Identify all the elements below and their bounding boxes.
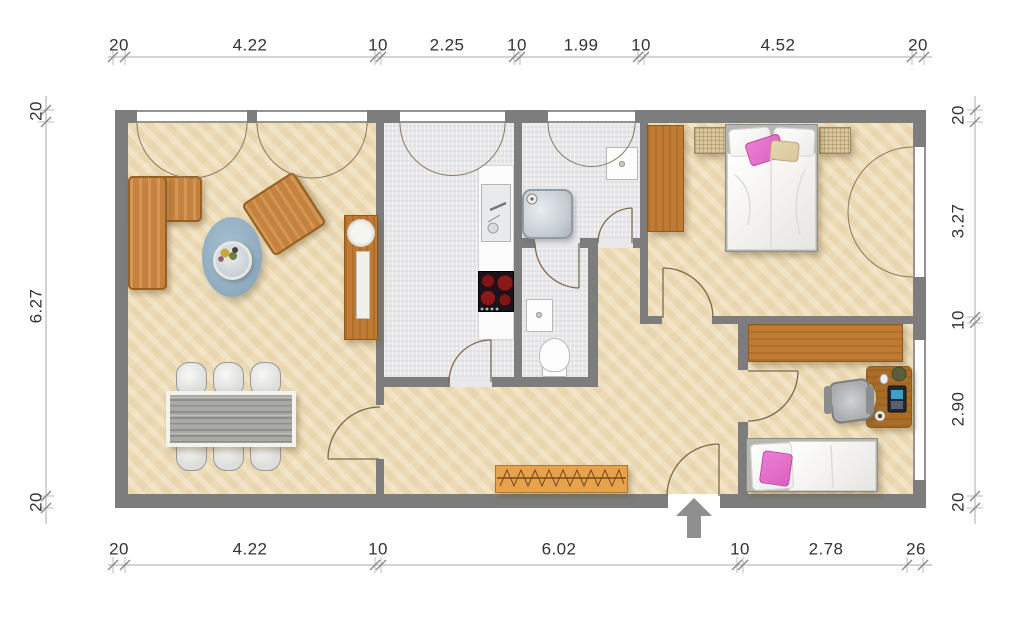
- dim-bottom-4: 10: [730, 541, 750, 558]
- dim-right-2: 10: [950, 310, 967, 330]
- nightstand-right: [819, 127, 851, 154]
- dim-top-0: 20: [109, 37, 129, 54]
- wall-bath-south-b: [580, 238, 598, 248]
- coat-rack: [495, 465, 628, 493]
- dim-top-8: 20: [908, 37, 928, 54]
- dim-right-3: 2.90: [950, 392, 967, 427]
- wall-kitchen-bath: [514, 123, 522, 377]
- window-living-left: [137, 110, 247, 123]
- cushion-pink-office: [759, 450, 793, 487]
- dim-left-1: 6.27: [28, 289, 45, 324]
- single-bed-duvet: [789, 441, 876, 491]
- wall-living-hall-lower: [376, 459, 384, 494]
- wall-outer-bottom: [115, 494, 926, 508]
- dim-bottom-5: 2.78: [809, 541, 844, 558]
- threshold-bath-door: [598, 238, 633, 248]
- kitchen-sink: [481, 184, 511, 242]
- dim-top-5: 1.99: [564, 37, 599, 54]
- nightstand-left: [694, 127, 726, 154]
- dim-bottom-1: 4.22: [233, 541, 268, 558]
- toilet-bowl: [539, 338, 570, 372]
- coffee-table: [213, 241, 252, 280]
- entrance-opening: [668, 494, 720, 508]
- threshold-kitchen-door: [450, 377, 492, 387]
- dim-left-2: 20: [28, 492, 45, 512]
- dim-bottom-3: 6.02: [542, 541, 577, 558]
- cushion-beige-bedroom: [769, 140, 800, 163]
- wall-outer-left: [115, 110, 128, 508]
- wc-washbasin: [526, 299, 553, 332]
- wardrobe-bedroom: [647, 125, 684, 232]
- dim-top-6: 10: [631, 37, 651, 54]
- dim-right-0: 20: [950, 105, 967, 125]
- dim-top-3: 2.25: [430, 37, 465, 54]
- window-office: [913, 340, 926, 480]
- window-kitchen: [400, 110, 505, 123]
- dim-top-2: 10: [368, 37, 388, 54]
- dim-bottom-2: 10: [368, 541, 388, 558]
- sofa-corner-vertical: [128, 176, 167, 290]
- threshold-wc-door: [535, 238, 580, 248]
- floor-plan: 20 4.22 10 2.25 10 1.99 10 4.52 20 20 4.…: [0, 0, 1033, 617]
- wall-bedroom-south-west: [648, 316, 662, 324]
- wall-kitchen-south-east: [492, 377, 598, 387]
- wall-wc-east: [588, 248, 598, 377]
- wall-bath-south-a: [522, 238, 535, 248]
- dim-right-1: 3.27: [950, 204, 967, 239]
- bathroom-washbasin: [606, 147, 638, 180]
- office-chair: [827, 377, 874, 424]
- dim-top-1: 4.22: [233, 37, 268, 54]
- window-bathroom: [548, 110, 635, 123]
- wall-bedroom-south-east: [712, 316, 913, 324]
- dining-table: [166, 391, 296, 447]
- shower-tray: [522, 189, 573, 239]
- dim-left-0: 20: [28, 101, 45, 121]
- wall-kitchen-south-west: [384, 377, 450, 387]
- dim-bottom-0: 20: [109, 541, 129, 558]
- window-living-right: [257, 110, 367, 123]
- dim-top-4: 10: [507, 37, 527, 54]
- window-bedroom: [913, 147, 926, 277]
- plant-on-sideboard: [347, 219, 375, 247]
- double-bed-duvet: [727, 153, 816, 250]
- wardrobe-office: [748, 324, 903, 362]
- dim-bottom-6: 26: [906, 541, 926, 558]
- dim-top-7: 4.52: [761, 37, 796, 54]
- stove-cooktop: [478, 271, 514, 312]
- tv-on-sideboard: [356, 251, 370, 319]
- dim-right-4: 20: [950, 492, 967, 512]
- wall-office-west-upper: [738, 324, 748, 370]
